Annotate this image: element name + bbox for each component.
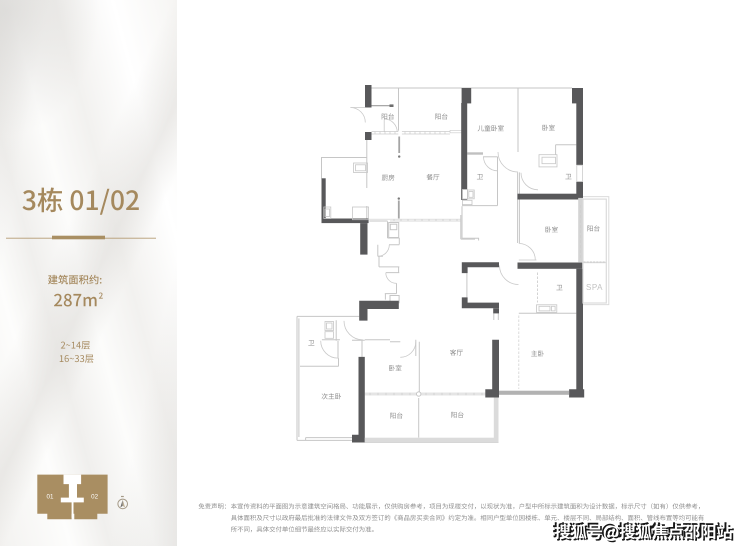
svg-text:SPA: SPA [586, 283, 603, 292]
svg-text:01: 01 [47, 494, 54, 501]
svg-text:02: 02 [91, 494, 98, 501]
